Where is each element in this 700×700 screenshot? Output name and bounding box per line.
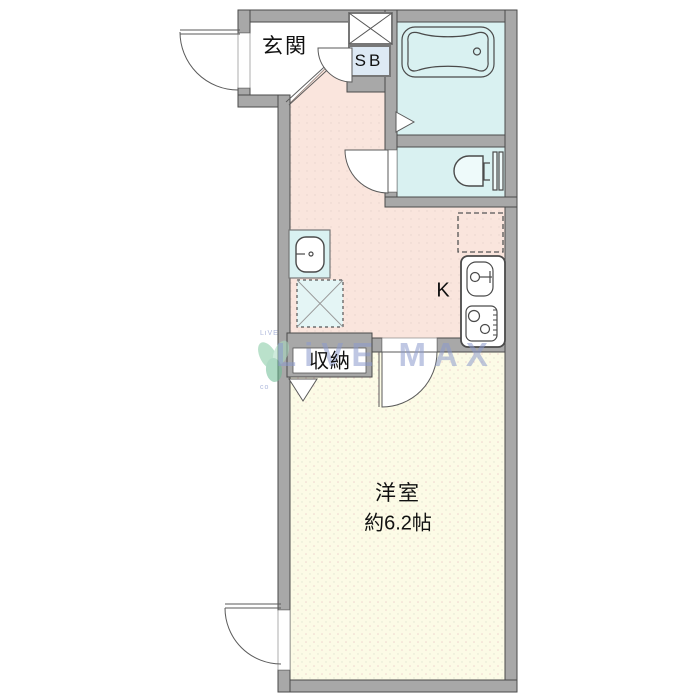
- toilet: [454, 152, 503, 190]
- shoe-box-label: SB: [355, 51, 384, 71]
- room-name-label: 洋室: [375, 477, 421, 507]
- balcony-door-threshold: [278, 610, 290, 670]
- meter-box: [349, 13, 392, 44]
- kitchen-label: K: [436, 280, 451, 303]
- toilet-room-floor: [397, 147, 505, 197]
- washing-machine-space: [297, 280, 343, 327]
- entrance-door-threshold: [238, 33, 250, 88]
- room-size-label: 約6.2帖: [364, 507, 432, 536]
- washbasin: [289, 230, 330, 278]
- floor-plan: LiVE MAX LiVE co 玄関 SB K 収納 洋室 約6.2帖: [0, 0, 700, 700]
- watermark-small-top: LiVE: [260, 330, 279, 337]
- watermark-small-bottom: co: [260, 384, 269, 391]
- entrance-label: 玄関: [262, 30, 308, 60]
- closet-label: 収納: [309, 345, 351, 374]
- bathroom-floor: [397, 22, 505, 135]
